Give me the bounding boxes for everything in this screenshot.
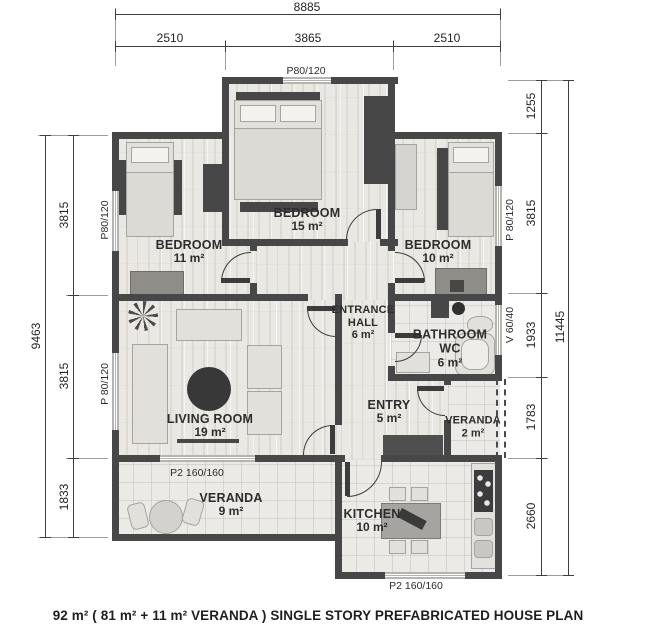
wall-segment xyxy=(335,462,342,572)
dining-chair xyxy=(389,540,406,554)
pillow xyxy=(453,147,489,163)
plant-icon xyxy=(128,301,158,331)
wall-segment xyxy=(222,239,348,246)
wall-segment xyxy=(112,294,308,301)
round-rug xyxy=(187,367,231,411)
floor-corridor xyxy=(255,242,395,302)
dim-top-seg-3: 2510 xyxy=(434,31,461,45)
dim-left-seg-3: 1833 xyxy=(57,484,71,511)
wall-segment xyxy=(388,77,395,246)
wardrobe xyxy=(364,96,390,184)
window-bathroom xyxy=(495,305,502,355)
wall-segment xyxy=(388,283,395,301)
armchair xyxy=(247,345,282,389)
dim-line-top-segments xyxy=(115,46,500,47)
room-label-bedroom-left: BEDROOM 11 m² xyxy=(156,238,223,266)
room-label-bedroom-top: BEDROOM 15 m² xyxy=(274,206,341,234)
dim-tick xyxy=(536,377,547,378)
dim-tick xyxy=(536,80,547,81)
bedside-rug xyxy=(119,160,126,215)
window-bedroom-top xyxy=(283,77,331,84)
dim-right-seg-3: 1933 xyxy=(524,322,538,349)
wall-segment xyxy=(250,283,257,301)
bedside-rug xyxy=(437,148,448,230)
wall-segment xyxy=(112,534,341,541)
window-living-room xyxy=(112,353,119,430)
kitchen-sink xyxy=(474,540,493,558)
window-kitchen xyxy=(385,572,465,579)
window-label-bedroom-left: P80/120 xyxy=(99,200,111,239)
dim-tick xyxy=(393,41,394,52)
dim-tick xyxy=(536,575,547,576)
window-bedroom-right xyxy=(495,186,502,246)
window-label-top: P80/120 xyxy=(286,65,325,77)
wardrobe xyxy=(395,144,417,210)
wall-segment xyxy=(495,246,502,305)
wall-segment xyxy=(112,132,119,191)
dim-top-seg-1: 2510 xyxy=(157,31,184,45)
dim-line-left-segments xyxy=(73,135,74,537)
dim-tick xyxy=(68,295,79,296)
room-label-veranda-small: VERANDA 2 m² xyxy=(445,414,501,439)
washing-machine xyxy=(431,299,449,318)
dim-tick xyxy=(536,458,547,459)
sliding-door-living-veranda xyxy=(160,455,255,462)
dim-tick xyxy=(500,9,501,20)
room-label-entrance-hall: ENTRANCE HALL 6 m² xyxy=(327,304,399,342)
dining-chair xyxy=(411,487,428,501)
wall-segment xyxy=(444,374,451,385)
dim-top-total: 8885 xyxy=(294,0,321,14)
sofa xyxy=(132,344,168,444)
wall-segment xyxy=(388,239,395,251)
patio-table xyxy=(149,500,183,534)
dim-left-total: 9463 xyxy=(29,323,43,350)
window-label-living: P 80/120 xyxy=(99,363,111,405)
dining-chair xyxy=(411,540,428,554)
wall-segment xyxy=(495,355,502,381)
bedside-rug xyxy=(174,160,182,215)
room-label-entry: ENTRY 5 m² xyxy=(368,398,411,426)
dim-top-seg-2: 3865 xyxy=(295,31,322,45)
pillow xyxy=(131,147,169,163)
dim-line-top-total xyxy=(115,14,500,15)
window-label-bathroom: V 60/40 xyxy=(504,307,516,343)
pillow xyxy=(280,105,316,122)
dim-right-seg-5: 2660 xyxy=(524,503,538,530)
veranda-open-edge xyxy=(504,379,506,458)
wall-segment xyxy=(112,251,119,353)
wall-segment xyxy=(112,132,229,139)
dim-tick xyxy=(536,133,547,134)
desk-chair xyxy=(450,280,464,292)
dim-line-left-total xyxy=(45,135,46,537)
wall-segment xyxy=(388,294,502,301)
room-label-veranda-large: VERANDA 9 m² xyxy=(199,491,262,519)
stove xyxy=(474,470,493,512)
room-label-kitchen: KITCHEN 10 m² xyxy=(344,507,401,535)
dim-line-right-segments xyxy=(541,80,542,575)
bed-blanket xyxy=(448,172,494,237)
dim-tick xyxy=(68,458,79,459)
door-label-living-veranda: P2 160/160 xyxy=(170,467,224,479)
dim-left-seg-1: 3815 xyxy=(57,202,71,229)
dim-tick xyxy=(563,575,574,576)
dim-right-total: 11445 xyxy=(553,311,567,343)
stool xyxy=(452,302,465,315)
wall-segment xyxy=(112,455,160,462)
room-label-living-room: LIVING ROOM 19 m² xyxy=(167,412,253,440)
wall-segment xyxy=(381,455,502,462)
dim-line-right-total xyxy=(568,80,569,575)
dim-tick xyxy=(40,135,51,136)
plan-caption: 92 m² ( 81 m² + 11 m² VERANDA ) SINGLE S… xyxy=(53,608,584,623)
dim-right-seg-4: 1783 xyxy=(524,404,538,431)
sofa xyxy=(176,309,242,341)
wall-segment xyxy=(388,366,395,381)
floor-plan-canvas: 8885 2510 3865 2510 9463 3815 3815 1833 … xyxy=(0,0,665,642)
dim-tick xyxy=(115,41,116,52)
entry-cabinet xyxy=(383,435,443,455)
window-label-kitchen: P2 160/160 xyxy=(389,580,443,592)
dim-right-seg-2: 3815 xyxy=(524,200,538,227)
pillow xyxy=(240,105,276,122)
dim-tick xyxy=(68,537,79,538)
kitchen-sink xyxy=(474,518,493,536)
wall-segment xyxy=(112,462,119,541)
wall-segment xyxy=(222,77,283,84)
wall-segment xyxy=(495,132,502,186)
window-bedroom-left xyxy=(112,191,119,251)
bed-blanket xyxy=(234,128,322,200)
wall-segment xyxy=(250,239,257,251)
wall-segment xyxy=(222,77,229,246)
wall-segment xyxy=(388,132,502,139)
dim-tick xyxy=(500,41,501,52)
desk xyxy=(130,271,184,296)
room-label-bedroom-right: BEDROOM 10 m² xyxy=(405,238,472,266)
dim-tick xyxy=(536,293,547,294)
dim-left-seg-2: 3815 xyxy=(57,363,71,390)
dining-chair xyxy=(389,487,406,501)
dim-tick xyxy=(115,9,116,20)
wall-segment xyxy=(335,572,385,579)
dim-right-seg-1: 1255 xyxy=(524,93,538,120)
dim-tick xyxy=(225,41,226,52)
dim-tick xyxy=(40,537,51,538)
bed-blanket xyxy=(126,172,174,237)
room-label-bathroom: BATHROOM WC 6 m² xyxy=(408,328,492,371)
wall-segment xyxy=(255,455,344,462)
wall-segment xyxy=(112,430,119,462)
wall-segment xyxy=(335,455,345,462)
dim-tick xyxy=(563,80,574,81)
window-label-bedroom-right: P 80/120 xyxy=(504,199,516,241)
dim-tick xyxy=(68,135,79,136)
wall-segment xyxy=(495,455,502,579)
